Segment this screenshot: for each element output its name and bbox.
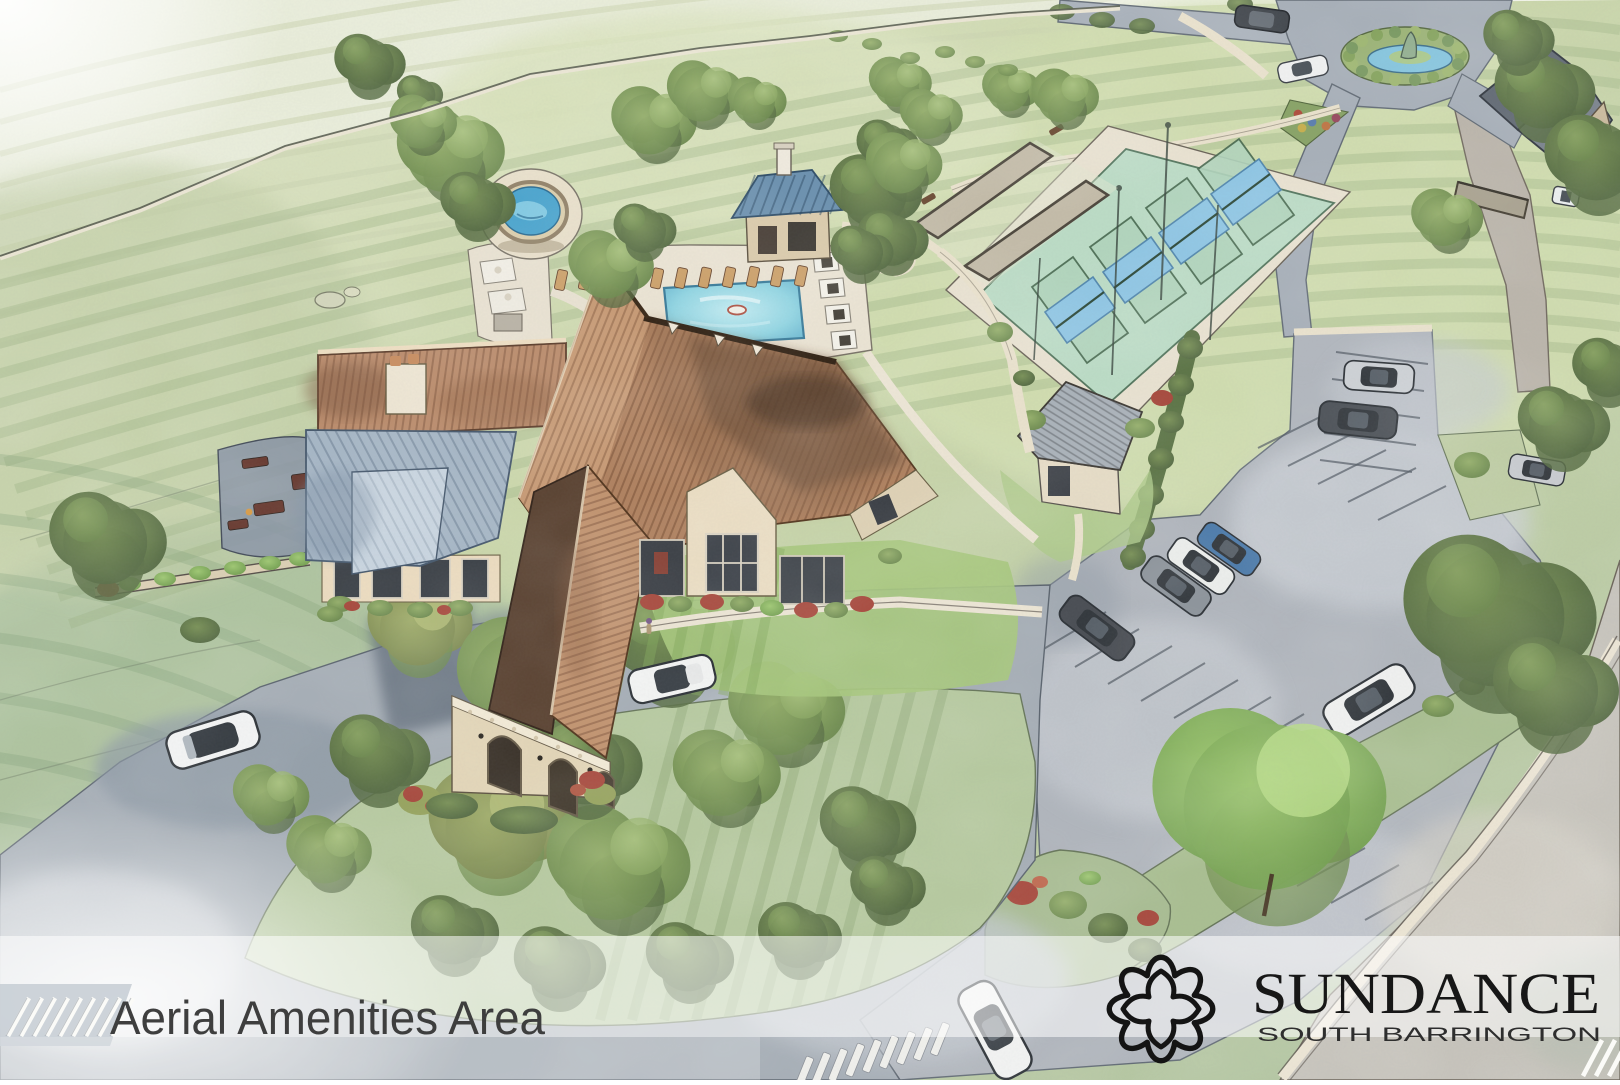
svg-text:SOUTH BARRINGTON: SOUTH BARRINGTON (1257, 1025, 1601, 1046)
svg-text:Aerial Amenities Area: Aerial Amenities Area (110, 991, 546, 1044)
svg-text:SUNDANCE: SUNDANCE (1252, 961, 1600, 1026)
